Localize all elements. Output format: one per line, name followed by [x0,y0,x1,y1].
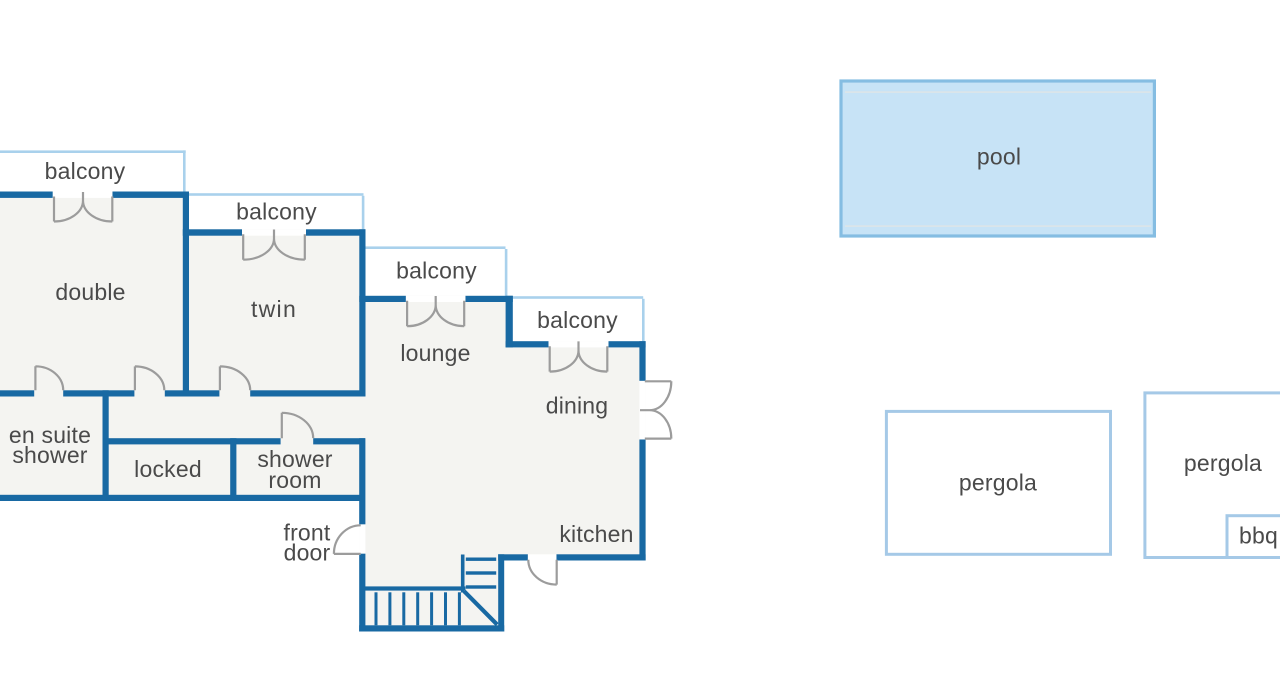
svg-text:dining: dining [546,393,609,419]
svg-text:shower: shower [12,442,87,468]
svg-text:balcony: balcony [537,307,618,333]
svg-text:balcony: balcony [236,199,317,225]
svg-text:twin: twin [251,296,297,322]
svg-text:room: room [268,467,321,493]
svg-text:pergola: pergola [1184,450,1262,476]
svg-text:locked: locked [134,456,202,482]
svg-text:bbq: bbq [1239,523,1278,549]
svg-text:pergola: pergola [959,470,1037,496]
svg-text:door: door [284,540,331,566]
svg-text:double: double [55,279,125,305]
svg-text:balcony: balcony [45,158,126,184]
svg-text:lounge: lounge [400,340,470,366]
svg-text:balcony: balcony [396,258,477,284]
svg-text:pool: pool [977,144,1021,170]
svg-text:kitchen: kitchen [559,521,633,547]
